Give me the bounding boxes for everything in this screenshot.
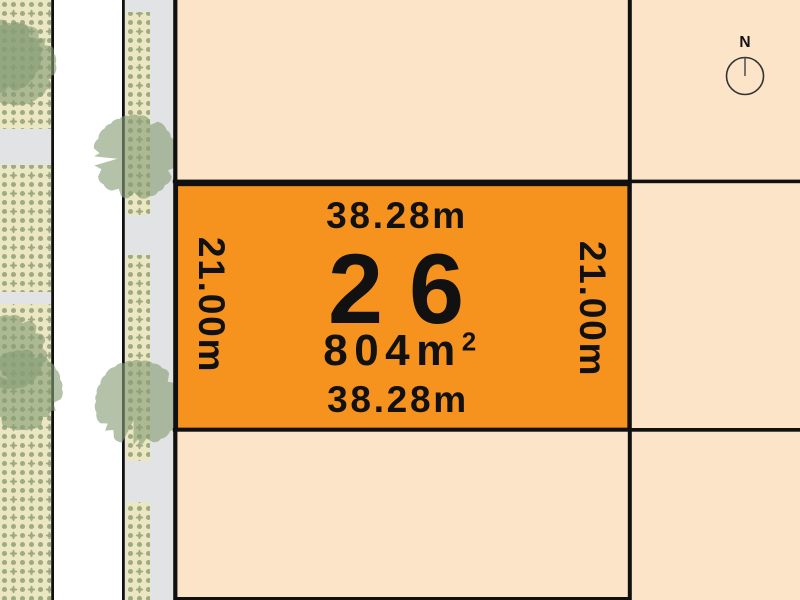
svg-text:38.28m: 38.28m <box>327 379 469 420</box>
svg-text:38.28m: 38.28m <box>326 195 468 236</box>
svg-text:21.00m: 21.00m <box>191 237 232 373</box>
svg-text:N: N <box>739 34 750 51</box>
svg-text:804m2: 804m2 <box>323 326 483 375</box>
svg-text:21.00m: 21.00m <box>572 241 613 377</box>
